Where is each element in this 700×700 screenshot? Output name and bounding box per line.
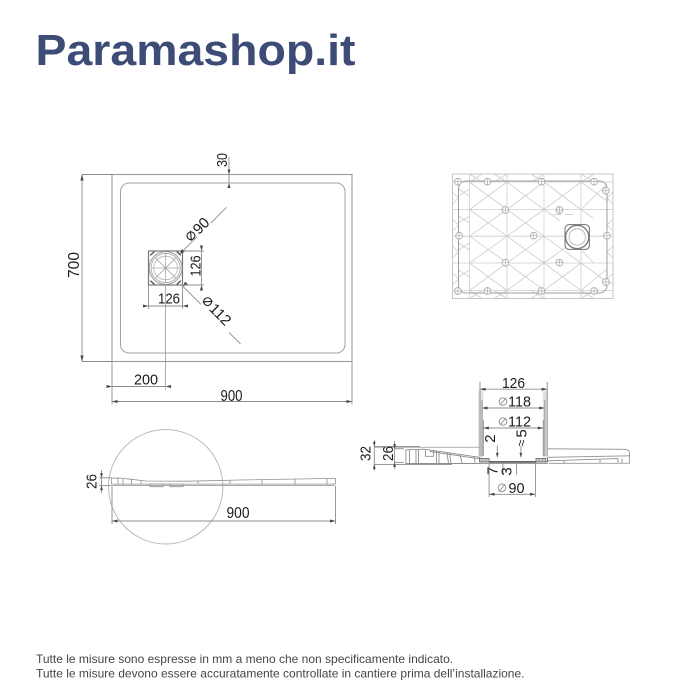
svg-text:90: 90 bbox=[509, 480, 525, 497]
svg-text:700: 700 bbox=[66, 252, 83, 278]
svg-text:5: 5 bbox=[514, 429, 531, 437]
svg-text:126: 126 bbox=[187, 256, 204, 277]
svg-text:126: 126 bbox=[502, 375, 525, 392]
svg-text:32: 32 bbox=[358, 446, 375, 461]
svg-text:900: 900 bbox=[227, 505, 250, 522]
svg-text:Tutte le misure devono essere: Tutte le misure devono essere accuratame… bbox=[36, 667, 524, 681]
svg-text:30: 30 bbox=[214, 153, 231, 167]
svg-text:112: 112 bbox=[508, 414, 531, 431]
svg-text:Tutte le misure sono espresse: Tutte le misure sono espresse in mm a me… bbox=[36, 652, 453, 666]
svg-text:26: 26 bbox=[84, 474, 101, 489]
svg-text:126: 126 bbox=[158, 291, 180, 308]
svg-text:118: 118 bbox=[508, 394, 531, 411]
svg-text:2: 2 bbox=[482, 434, 499, 442]
svg-text:26: 26 bbox=[380, 446, 397, 461]
svg-text:900: 900 bbox=[221, 388, 243, 405]
svg-text:Paramashop.it: Paramashop.it bbox=[36, 26, 356, 75]
svg-text:3: 3 bbox=[499, 467, 516, 475]
svg-text:200: 200 bbox=[134, 372, 158, 389]
